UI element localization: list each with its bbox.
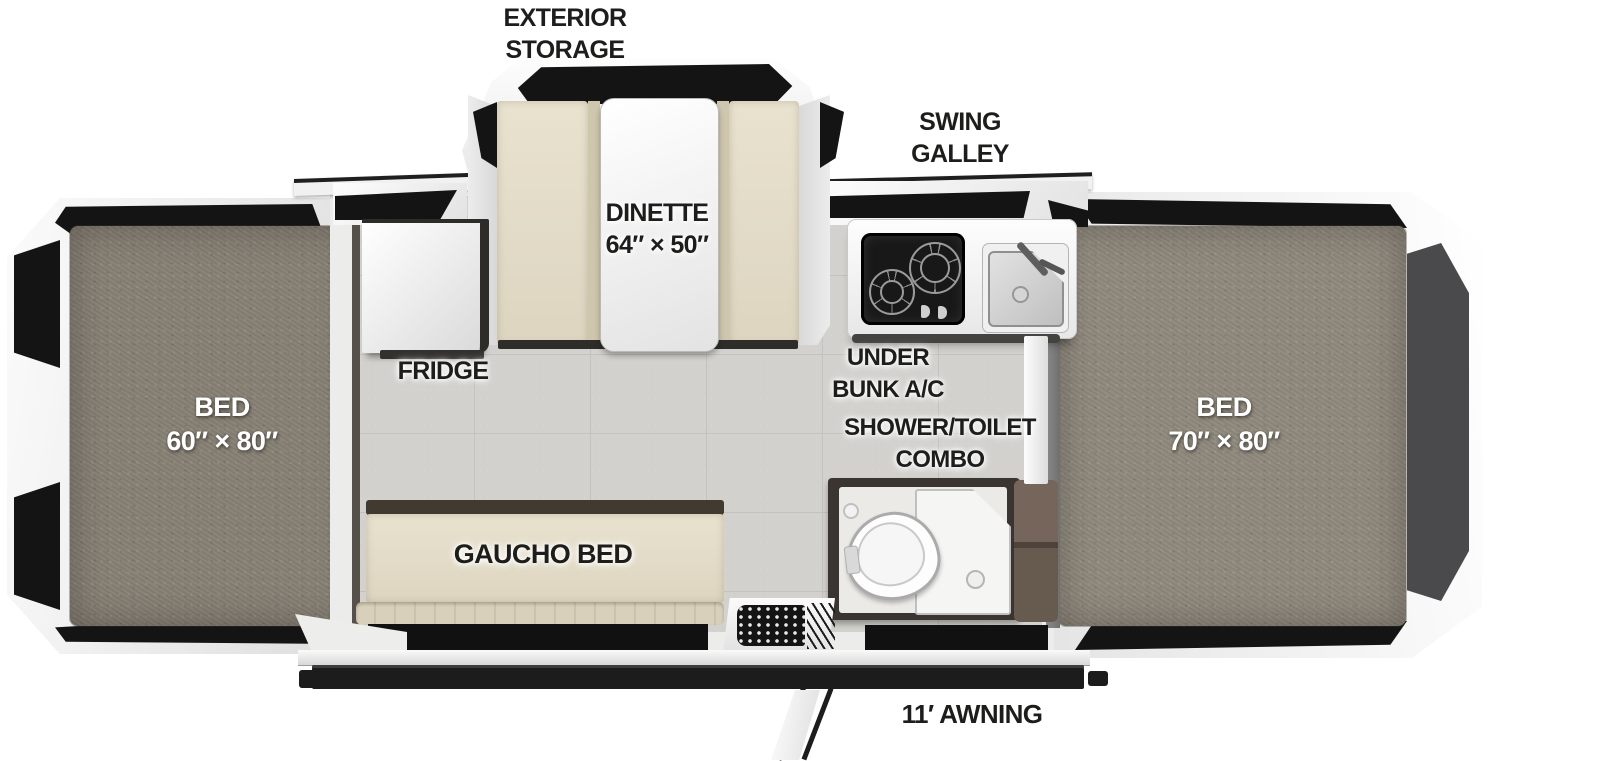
label-exterior-storage: EXTERIOR STORAGE <box>445 2 685 66</box>
toilet-lid <box>853 518 928 590</box>
label-under-bunk-ac: UNDER BUNK A/C <box>768 342 1008 406</box>
cooktop-burner-small-icon <box>869 269 915 315</box>
left-wall-seam <box>352 220 360 628</box>
awning-roller <box>312 665 1084 689</box>
label-shower-toilet-combo: SHOWER/TOILET COMBO <box>810 412 1070 476</box>
shower-drain-icon <box>966 570 985 589</box>
awning-bracket-right <box>1088 671 1108 686</box>
awning-rail <box>298 650 1090 666</box>
cooktop-burner-large-icon <box>909 242 961 294</box>
label-bed-right: BED 70″ × 80″ <box>1104 390 1344 458</box>
sink-drain-icon <box>1012 286 1029 303</box>
right-bunk-side-panel <box>1407 243 1469 601</box>
floor-mat-right <box>865 625 1048 653</box>
cooktop <box>861 233 965 325</box>
bath-cabinet <box>1014 480 1058 622</box>
cooktop-knob-icon <box>938 306 947 319</box>
left-bunk-side-panel-bottom <box>14 482 60 610</box>
fridge <box>362 219 489 353</box>
gaucho-bed-backrest <box>366 500 724 515</box>
floor-mat-left <box>368 624 708 652</box>
label-fridge: FRIDGE <box>323 355 563 387</box>
label-gaucho-bed: GAUCHO BED <box>423 538 663 570</box>
gaucho-bed-rail <box>356 602 724 625</box>
entry-step-hatch <box>807 603 835 649</box>
cooktop-knob-icon <box>921 305 930 318</box>
floorplan-canvas: EXTERIOR STORAGE SWING GALLEY DINETTE 64… <box>0 0 1600 761</box>
pan-drain-icon <box>843 503 859 519</box>
label-bed-left: BED 60″ × 80″ <box>102 390 342 458</box>
label-awning: 11′ AWNING <box>852 698 1092 730</box>
left-bunk-side-panel-top <box>14 240 60 368</box>
label-swing-galley: SWING GALLEY <box>840 106 1080 170</box>
label-dinette: DINETTE 64″ × 50″ <box>537 197 777 261</box>
entry-step-mat <box>737 605 805 646</box>
awning-bracket-left <box>299 670 314 688</box>
